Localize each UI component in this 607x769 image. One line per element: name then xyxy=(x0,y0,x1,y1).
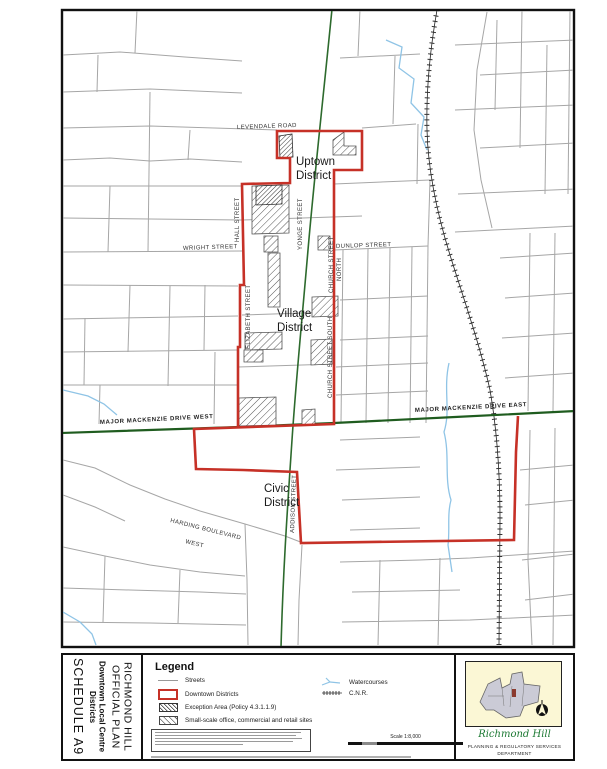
sheet-footer-strip: SCHEDULE A9 Downtown Local Centre Distri… xyxy=(61,653,575,761)
department-line1: PLANNING & REGULATORY SERVICES xyxy=(456,744,573,751)
document-title: Downtown Local Centre Districts xyxy=(88,661,106,752)
label-yonge-street: YONGE STREET xyxy=(298,198,304,250)
notes-fine-print xyxy=(151,729,311,752)
streets-line-icon xyxy=(157,680,179,681)
legend-item-cnr: C.N.R. xyxy=(321,689,368,697)
downtown-districts-icon xyxy=(157,689,179,700)
small-scale-hatch-icon xyxy=(157,716,179,725)
scale-bar-graphic xyxy=(348,742,463,745)
doc-title-line1: Downtown Local Centre xyxy=(97,661,106,752)
logo-block: Richmond Hill PLANNING & REGULATORY SERV… xyxy=(456,655,573,759)
municipality-silhouette xyxy=(480,672,540,718)
scale-label: Scale 1:8,000 xyxy=(348,734,463,740)
organization-title: RICHMOND HILL OFFICIAL PLAN xyxy=(109,662,133,751)
doc-title-line2: Districts xyxy=(88,661,97,752)
map-frame-border xyxy=(62,10,574,647)
legend-block: Legend Streets Downtown Districts Except… xyxy=(143,655,456,759)
schedule-title: SCHEDULE A9 xyxy=(71,658,85,755)
downtown-location-marker xyxy=(512,689,516,697)
locator-inset-map xyxy=(465,661,562,727)
scale-bar: Scale 1:8,000 xyxy=(348,734,463,745)
legend-item-streets: Streets xyxy=(157,677,205,684)
org-line2: OFFICIAL PLAN xyxy=(109,662,121,751)
civic-district-label-1: Civic xyxy=(264,483,289,495)
village-district-label-1: Village xyxy=(277,308,311,320)
label-hall-street: HALL STREET xyxy=(235,197,241,242)
legend-item-downtown-districts: Downtown Districts xyxy=(157,689,239,700)
uptown-district-label-2: District xyxy=(296,170,332,182)
legend-item-small-scale: Small-scale office, commercial and retai… xyxy=(157,716,312,725)
exception-hatch-icon xyxy=(157,703,179,712)
label-church-street-north-1: CHURCH STREET xyxy=(329,236,335,293)
department-line2: DEPARTMENT xyxy=(456,751,573,758)
richmond-hill-logo: Richmond Hill xyxy=(456,729,573,740)
department-text: PLANNING & REGULATORY SERVICES DEPARTMEN… xyxy=(456,744,573,758)
org-line1: RICHMOND HILL xyxy=(121,662,133,751)
schedule-text: SCHEDULE A9 xyxy=(71,658,85,755)
cnr-railway-icon xyxy=(321,689,343,697)
title-block: SCHEDULE A9 Downtown Local Centre Distri… xyxy=(63,655,143,759)
label-church-street-north-2: NORTH xyxy=(337,258,343,281)
civic-district-label-2: District xyxy=(264,497,300,509)
label-elizabeth-street: ELIZABETH STREET xyxy=(246,285,252,349)
legend-item-exception-area: Exception Area (Policy 4.3.1.1.9) xyxy=(157,703,276,712)
legend-title: Legend xyxy=(155,661,194,673)
label-church-street-south: CHURCH STREET SOUTH xyxy=(328,317,334,399)
watercourse-icon xyxy=(321,677,343,687)
legend-item-watercourses: Watercourses xyxy=(321,677,388,687)
credit-fine-print xyxy=(151,756,411,758)
uptown-district-label-1: Uptown xyxy=(296,156,335,168)
village-district-label-2: District xyxy=(277,322,313,334)
